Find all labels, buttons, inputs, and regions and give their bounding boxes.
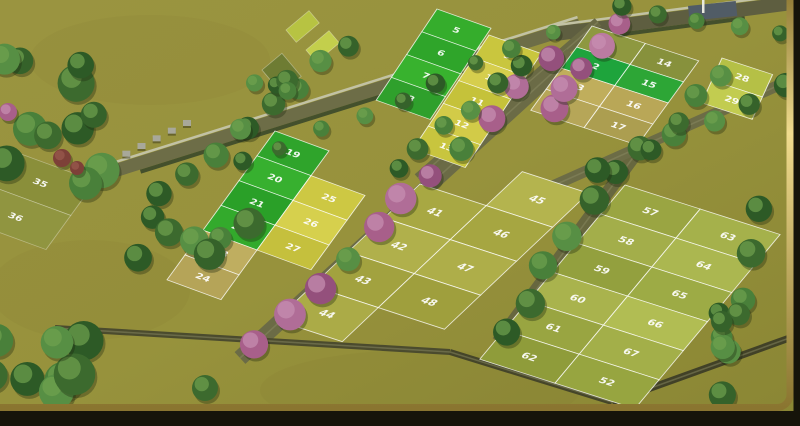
wall-post bbox=[168, 128, 176, 134]
tree-highlight bbox=[143, 207, 156, 220]
frame-mat-bottom bbox=[0, 411, 800, 426]
tree-highlight bbox=[519, 291, 535, 307]
tree-highlight bbox=[70, 54, 85, 69]
frame-mat-right bbox=[794, 0, 800, 426]
tree-highlight bbox=[740, 241, 756, 257]
tree-highlight bbox=[670, 114, 681, 125]
tree-highlight bbox=[83, 104, 97, 118]
tree-highlight bbox=[195, 377, 209, 391]
tree-highlight bbox=[312, 52, 324, 64]
tree-highlight bbox=[243, 332, 259, 348]
tree-highlight bbox=[587, 159, 601, 173]
tree-highlight bbox=[592, 35, 606, 49]
tree-highlight bbox=[127, 246, 142, 261]
tree-highlight bbox=[713, 337, 726, 350]
tree-highlight bbox=[16, 114, 35, 133]
wall-post bbox=[183, 120, 191, 126]
tree-highlight bbox=[235, 153, 245, 163]
tree-highlight bbox=[278, 71, 290, 83]
tree-highlight bbox=[396, 94, 405, 103]
tree-highlight bbox=[177, 164, 190, 177]
tree-highlight bbox=[774, 27, 783, 36]
tree-highlight bbox=[481, 107, 496, 122]
tree-highlight bbox=[553, 77, 568, 92]
tree-highlight bbox=[308, 275, 325, 292]
tree-highlight bbox=[55, 150, 65, 160]
tree-highlight bbox=[392, 160, 402, 170]
tree-highlight bbox=[733, 289, 746, 302]
tree-highlight bbox=[504, 41, 514, 51]
tree-highlight bbox=[273, 142, 281, 150]
tree-highlight bbox=[206, 144, 220, 158]
tree-highlight bbox=[741, 95, 753, 107]
wall-post bbox=[138, 143, 146, 149]
tree-highlight bbox=[555, 224, 571, 240]
tree-highlight bbox=[713, 312, 725, 324]
wall-post bbox=[153, 135, 161, 141]
tree-highlight bbox=[149, 183, 163, 197]
tree-highlight bbox=[706, 112, 718, 124]
tree-highlight bbox=[44, 328, 62, 346]
tree-highlight bbox=[436, 117, 446, 127]
tree-highlight bbox=[338, 249, 351, 262]
flag-pole bbox=[702, 0, 705, 13]
tree-highlight bbox=[748, 198, 763, 213]
tree-highlight bbox=[583, 187, 599, 203]
tree-highlight bbox=[452, 138, 465, 151]
tree-highlight bbox=[496, 321, 511, 336]
tree-highlight bbox=[547, 26, 555, 34]
tree-highlight bbox=[489, 74, 501, 86]
tree-highlight bbox=[358, 109, 367, 118]
tree-highlight bbox=[541, 47, 555, 61]
tree-highlight bbox=[729, 304, 742, 317]
tree-highlight bbox=[532, 253, 548, 269]
tree-highlight bbox=[237, 210, 254, 227]
tree-highlight bbox=[733, 19, 743, 29]
tree-highlight bbox=[315, 122, 324, 131]
tree-highlight bbox=[71, 162, 79, 170]
tree-highlight bbox=[248, 76, 257, 85]
tree-highlight bbox=[469, 56, 477, 64]
tree-highlight bbox=[463, 102, 474, 113]
tree-highlight bbox=[428, 75, 439, 86]
tree-highlight bbox=[409, 140, 421, 152]
tree-highlight bbox=[1, 104, 11, 114]
wall-post bbox=[122, 151, 130, 157]
tree-highlight bbox=[687, 86, 700, 99]
tree-highlight bbox=[158, 220, 173, 235]
tree-highlight bbox=[712, 66, 724, 78]
tree-highlight bbox=[183, 229, 199, 245]
tree-highlight bbox=[651, 7, 661, 17]
tree-highlight bbox=[643, 141, 655, 153]
tree-highlight bbox=[37, 124, 52, 139]
tree-highlight bbox=[340, 37, 351, 48]
tree-highlight bbox=[572, 59, 584, 71]
tree-highlight bbox=[388, 185, 405, 202]
land-plot-layout-render: 3536567891011121312341415161728291920212… bbox=[0, 0, 800, 426]
tree-highlight bbox=[197, 241, 214, 258]
tree-highlight bbox=[232, 120, 244, 132]
tree-highlight bbox=[280, 83, 290, 93]
tree-highlight bbox=[690, 14, 699, 23]
tree-highlight bbox=[367, 214, 384, 231]
tree-highlight bbox=[277, 301, 295, 319]
site-plan-3d-render: 3536567891011121312341415161728291920212… bbox=[0, 0, 800, 426]
tree-highlight bbox=[14, 364, 33, 383]
tree-highlight bbox=[711, 383, 726, 398]
tree-highlight bbox=[421, 166, 434, 179]
tree-highlight bbox=[65, 115, 83, 133]
